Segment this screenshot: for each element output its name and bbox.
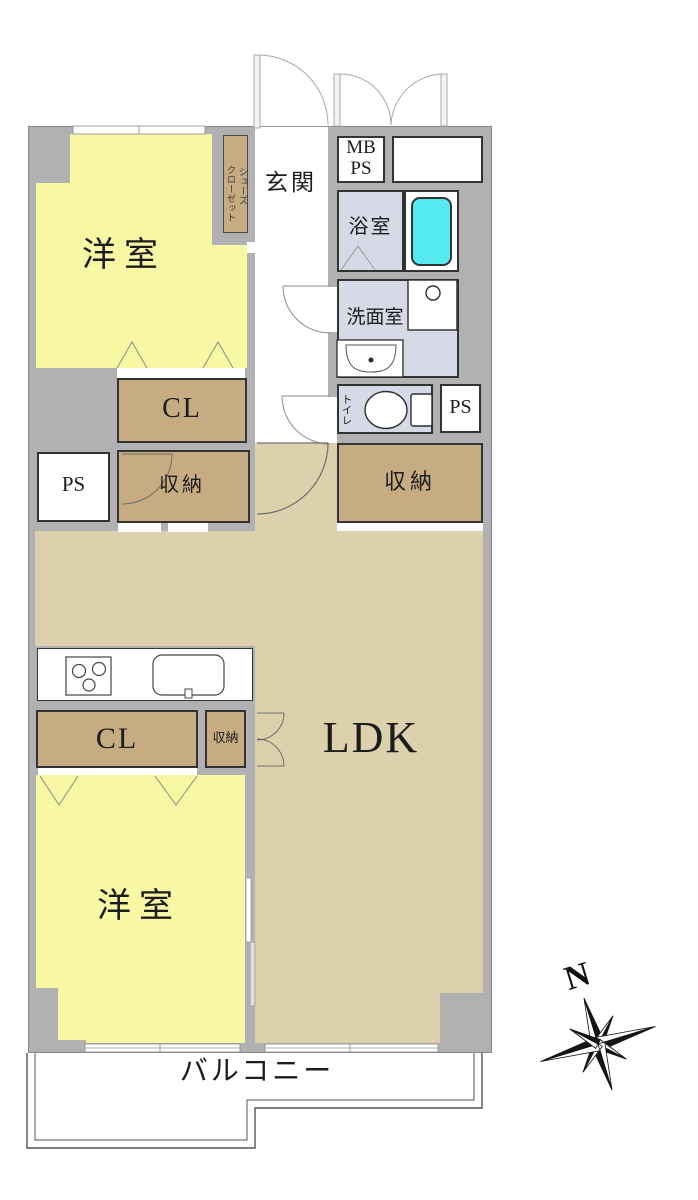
toilet-label: トイレ xyxy=(340,388,352,432)
mb-label: MB xyxy=(337,138,385,159)
entrance-label: 玄関 xyxy=(251,170,331,195)
storage-right-label: 収納 xyxy=(337,470,483,494)
toilet-door-gap xyxy=(328,397,337,443)
meter-box-blank xyxy=(392,136,483,183)
column-bottom-left-foot xyxy=(28,1040,86,1053)
floor-plan: N 洋室 洋室 玄関 シューズ クローゼット MB PS 浴室 洗面室 トイレ … xyxy=(0,0,698,1200)
ldk-label: LDK xyxy=(291,714,451,762)
room2-label: 洋室 xyxy=(54,888,224,925)
shoes-closet-label-line2: クローゼット xyxy=(224,150,234,236)
column-bottom-right xyxy=(440,993,492,1053)
north-label: N xyxy=(560,955,595,998)
closet-opening-top xyxy=(117,368,245,378)
ps-left-label: PS xyxy=(37,473,110,496)
balcony-label: バルコニー xyxy=(157,1057,357,1088)
storage-left-label: 収納 xyxy=(117,474,247,496)
bathtub xyxy=(411,197,452,266)
cl-bottom-label: CL xyxy=(36,722,198,755)
bathroom-label: 浴室 xyxy=(337,216,404,238)
closet-opening-bottom xyxy=(38,768,197,775)
western-room-top-floor-ext xyxy=(212,245,247,368)
wall-bottom xyxy=(28,1043,492,1053)
column-bottom-left xyxy=(28,988,58,1043)
column-top-left xyxy=(28,126,70,183)
compass-rose: N xyxy=(515,941,670,1107)
ps-top-label: PS xyxy=(337,159,385,180)
wall-right xyxy=(483,443,492,1053)
wall-left-corridor xyxy=(28,531,35,646)
storage-right-gap xyxy=(337,523,483,531)
room1-label: 洋室 xyxy=(39,237,209,274)
entrance-door-arc xyxy=(254,55,328,128)
service-double-door-arc xyxy=(334,74,447,126)
washroom-label: 洗面室 xyxy=(336,308,414,329)
storage-left-gap-2 xyxy=(168,523,208,532)
storage-small-label: 収納 xyxy=(205,731,246,745)
ps-right-label: PS xyxy=(440,396,481,418)
cl-top-label: CL xyxy=(117,394,247,425)
shoes-closet-label-line1: シューズ xyxy=(236,156,246,216)
kitchen-counter xyxy=(37,648,253,701)
room1-door-gap xyxy=(247,242,255,253)
corridor-floor xyxy=(35,531,255,646)
storage-left-gap-1 xyxy=(118,523,161,532)
mb-ps-label: MB PS xyxy=(337,138,385,180)
